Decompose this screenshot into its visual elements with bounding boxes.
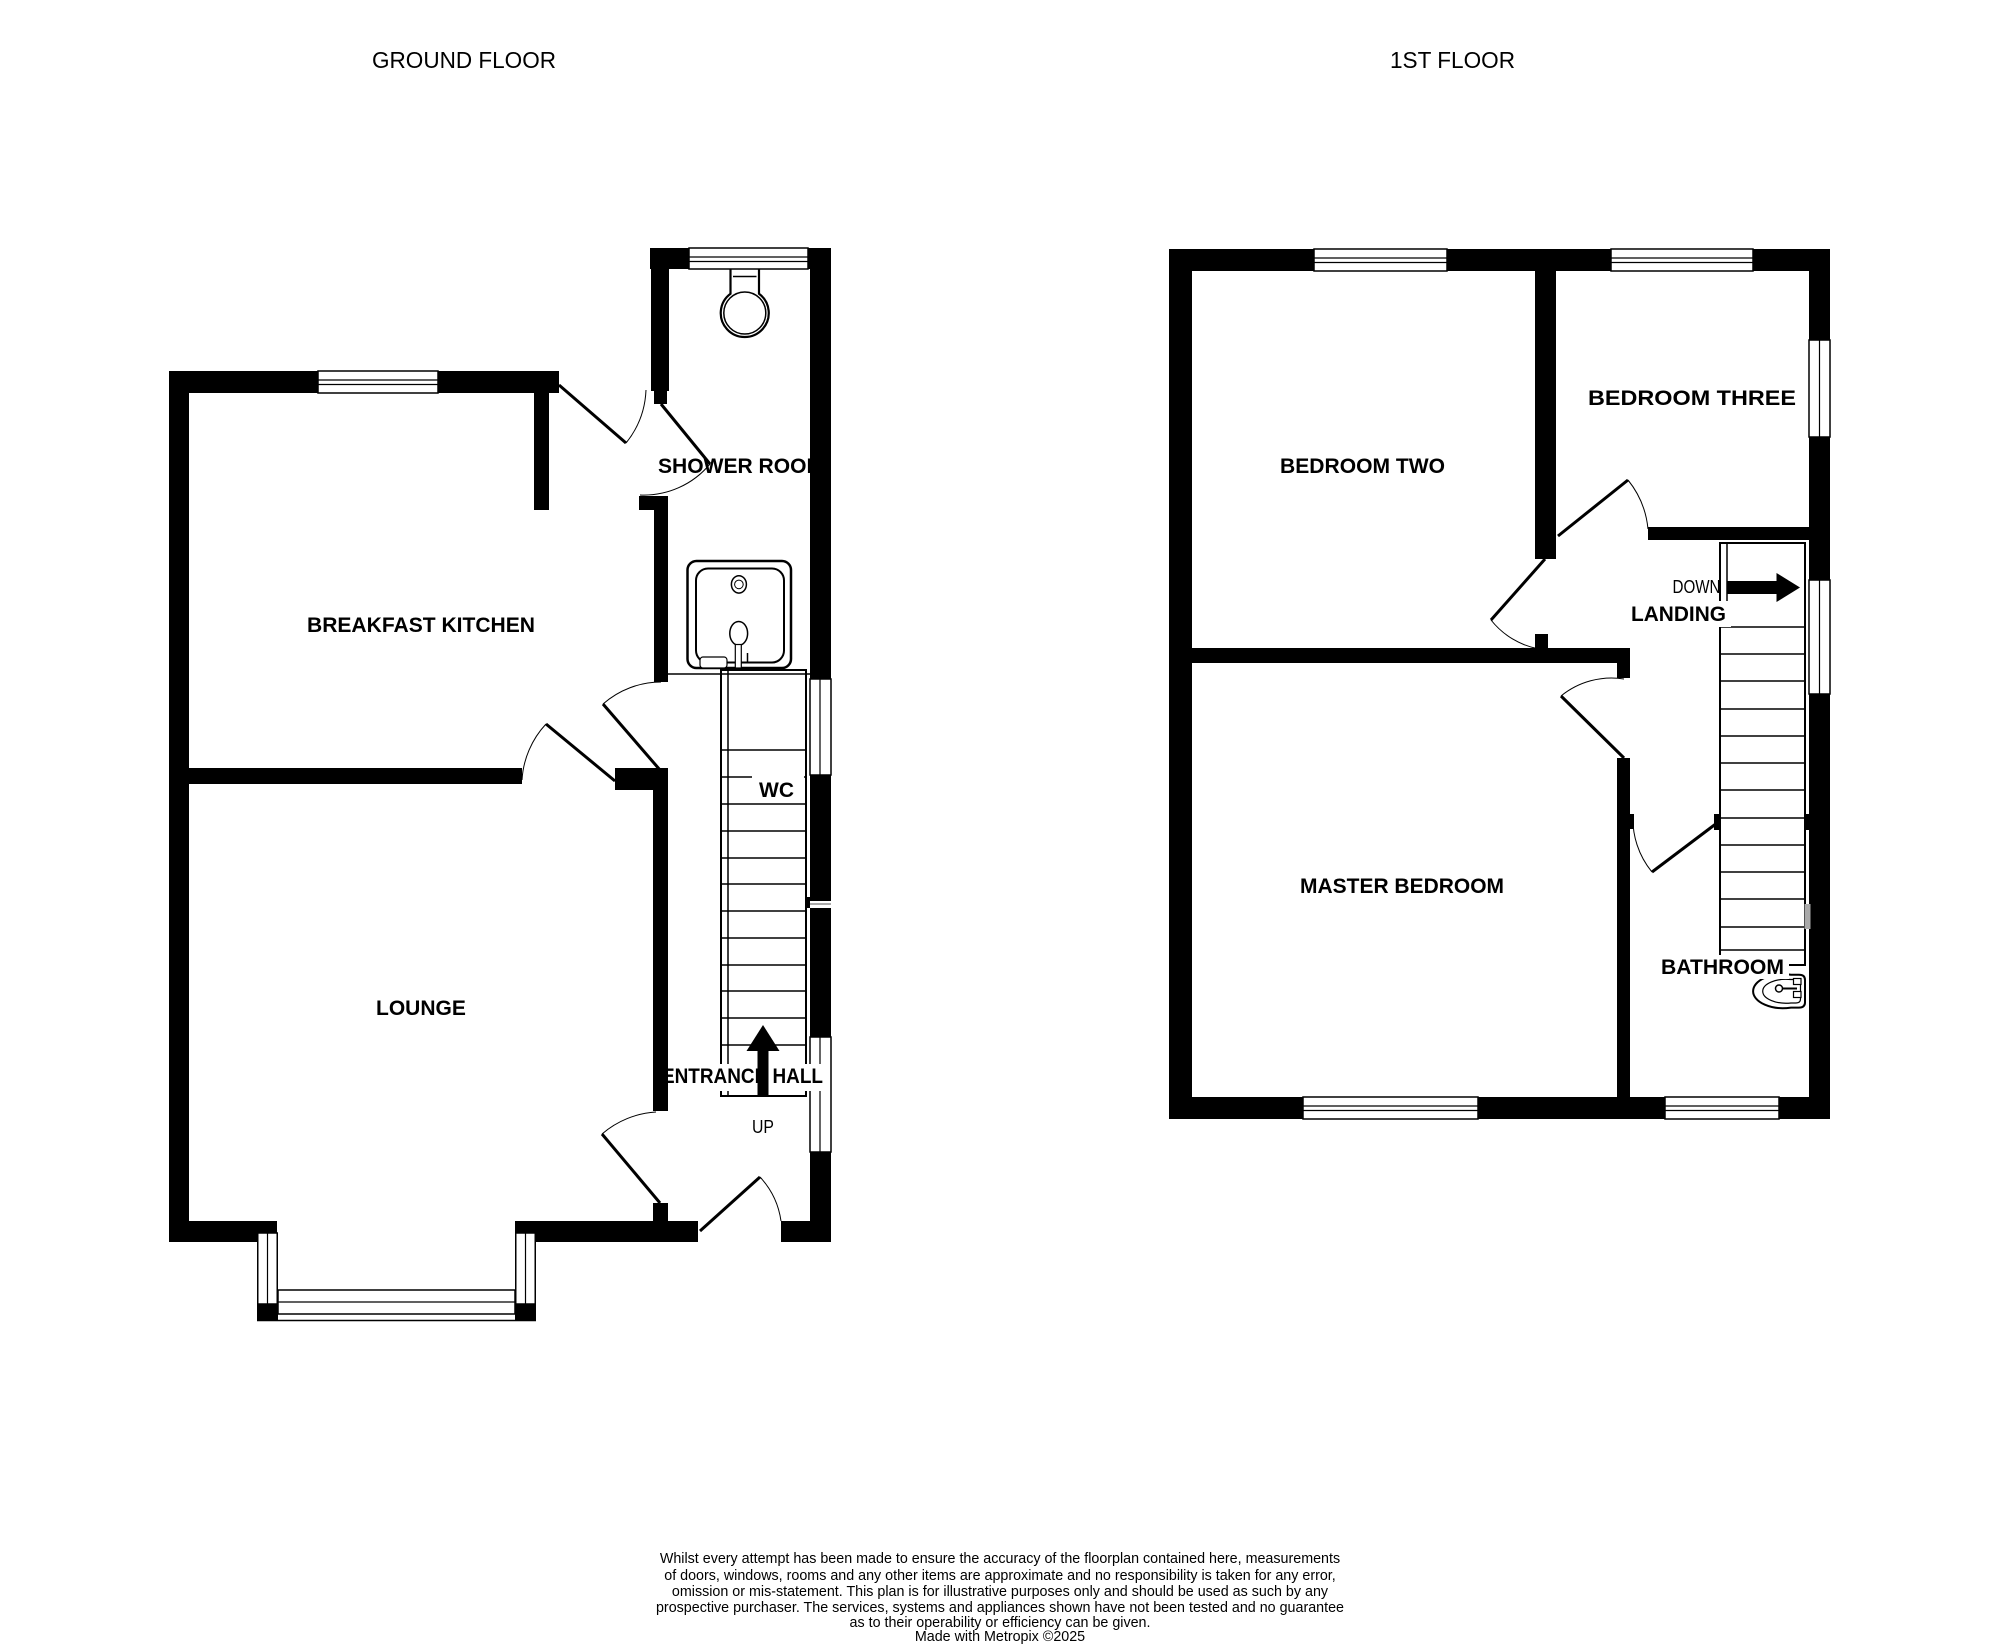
svg-text:BEDROOM THREE: BEDROOM THREE <box>1588 387 1796 410</box>
svg-text:LANDING: LANDING <box>1631 603 1726 626</box>
svg-text:omission or mis-statement. Thi: omission or mis-statement. This plan is … <box>672 1584 1329 1600</box>
svg-text:LOUNGE: LOUNGE <box>376 997 466 1020</box>
svg-text:UP: UP <box>752 1117 774 1137</box>
svg-text:MASTER BEDROOM: MASTER BEDROOM <box>1300 875 1504 898</box>
svg-text:Whilst every attempt has been: Whilst every attempt has been made to en… <box>660 1551 1340 1567</box>
svg-text:SHOWER ROOM: SHOWER ROOM <box>658 455 824 478</box>
svg-text:1ST FLOOR: 1ST FLOOR <box>1390 47 1515 73</box>
svg-text:DOWN: DOWN <box>1673 577 1721 597</box>
svg-text:BEDROOM TWO: BEDROOM TWO <box>1280 455 1445 478</box>
svg-text:Made with Metropix ©2025: Made with Metropix ©2025 <box>915 1629 1085 1645</box>
svg-text:ENTRANCE HALL: ENTRANCE HALL <box>662 1065 823 1088</box>
svg-text:BATHROOM: BATHROOM <box>1661 956 1784 979</box>
svg-text:BREAKFAST KITCHEN: BREAKFAST KITCHEN <box>307 614 535 637</box>
svg-text:prospective purchaser. The ser: prospective purchaser. The services, sys… <box>656 1600 1344 1616</box>
svg-text:WC: WC <box>759 779 794 802</box>
svg-text:GROUND FLOOR: GROUND FLOOR <box>372 47 556 73</box>
svg-text:of doors, windows, rooms and a: of doors, windows, rooms and any other i… <box>664 1568 1336 1584</box>
